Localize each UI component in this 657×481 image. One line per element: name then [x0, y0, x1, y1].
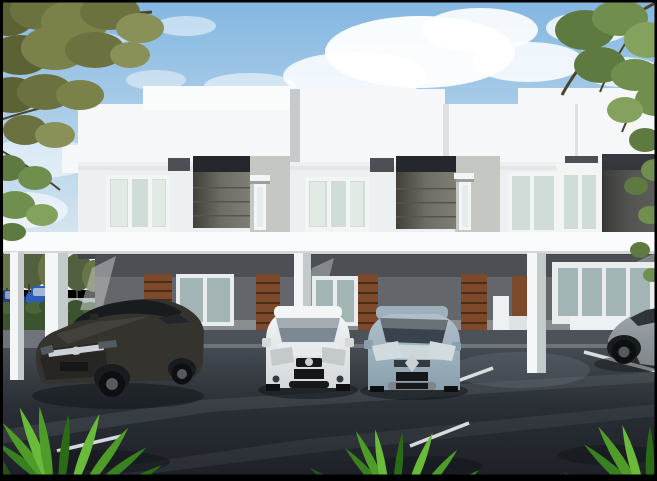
fog-light	[273, 376, 280, 383]
wheel	[370, 386, 384, 392]
badge	[305, 358, 313, 366]
wheel	[444, 386, 458, 392]
unit2-small-panel	[370, 158, 394, 172]
terrace-houses-render	[0, 0, 657, 481]
carport-fascia	[4, 232, 657, 259]
car-white-hatchback	[262, 306, 354, 391]
badge	[72, 347, 81, 356]
side-mirror	[90, 314, 99, 320]
unit3-bay-window	[556, 163, 604, 235]
unit3-upper-window	[508, 172, 558, 234]
fog-light	[337, 376, 344, 383]
unit1-feature-panel	[193, 156, 250, 228]
unit2-timber-door	[461, 274, 487, 332]
license-plate	[396, 372, 428, 381]
unit2-feature-panel	[396, 156, 456, 229]
wheel	[266, 384, 280, 391]
lower-intake	[289, 381, 329, 388]
license-plate	[60, 362, 88, 371]
carport-post	[527, 253, 546, 373]
lower-intake	[396, 383, 428, 389]
side-mirror	[345, 338, 354, 347]
side-mirror	[262, 338, 271, 347]
render-image	[0, 0, 657, 481]
sunlight-pool	[450, 352, 590, 388]
unit1-small-panel	[168, 158, 190, 171]
side-mirror	[364, 340, 373, 349]
unit2-upper-window	[305, 177, 369, 233]
parapet-step-shadow	[290, 89, 300, 168]
wheel	[336, 384, 350, 391]
upper-floor	[78, 154, 657, 236]
license-plate	[294, 369, 324, 379]
unit1-upper-window	[106, 175, 170, 236]
carport-post	[10, 252, 24, 380]
